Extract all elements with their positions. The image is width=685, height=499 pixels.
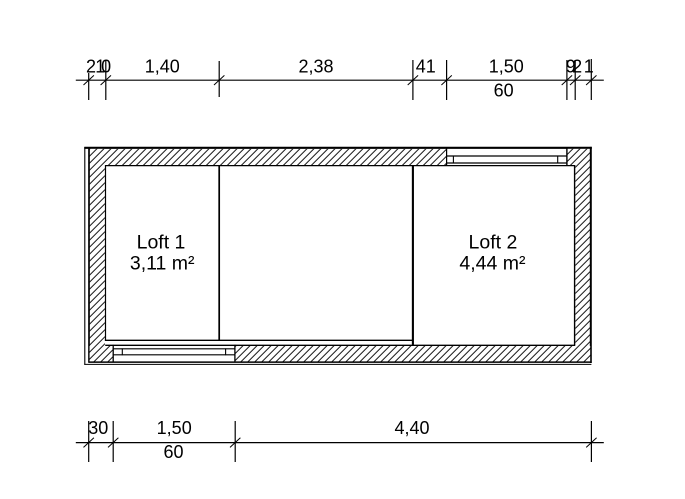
- svg-text:41: 41: [416, 56, 436, 76]
- svg-text:4,44 m²: 4,44 m²: [459, 253, 526, 275]
- svg-text:30: 30: [88, 418, 108, 438]
- svg-text:1: 1: [584, 56, 594, 76]
- svg-text:4,40: 4,40: [394, 418, 429, 438]
- svg-text:Loft 2: Loft 2: [469, 232, 518, 254]
- svg-text:Loft 1: Loft 1: [137, 232, 186, 254]
- svg-text:60: 60: [494, 80, 514, 100]
- svg-text:0: 0: [101, 56, 111, 76]
- svg-text:1,40: 1,40: [145, 56, 180, 76]
- svg-text:1,50: 1,50: [489, 56, 524, 76]
- svg-text:60: 60: [163, 442, 183, 462]
- svg-text:2,38: 2,38: [298, 56, 333, 76]
- svg-text:3,11 m²: 3,11 m²: [130, 253, 195, 275]
- svg-text:2: 2: [572, 56, 582, 76]
- svg-text:1,50: 1,50: [157, 418, 192, 438]
